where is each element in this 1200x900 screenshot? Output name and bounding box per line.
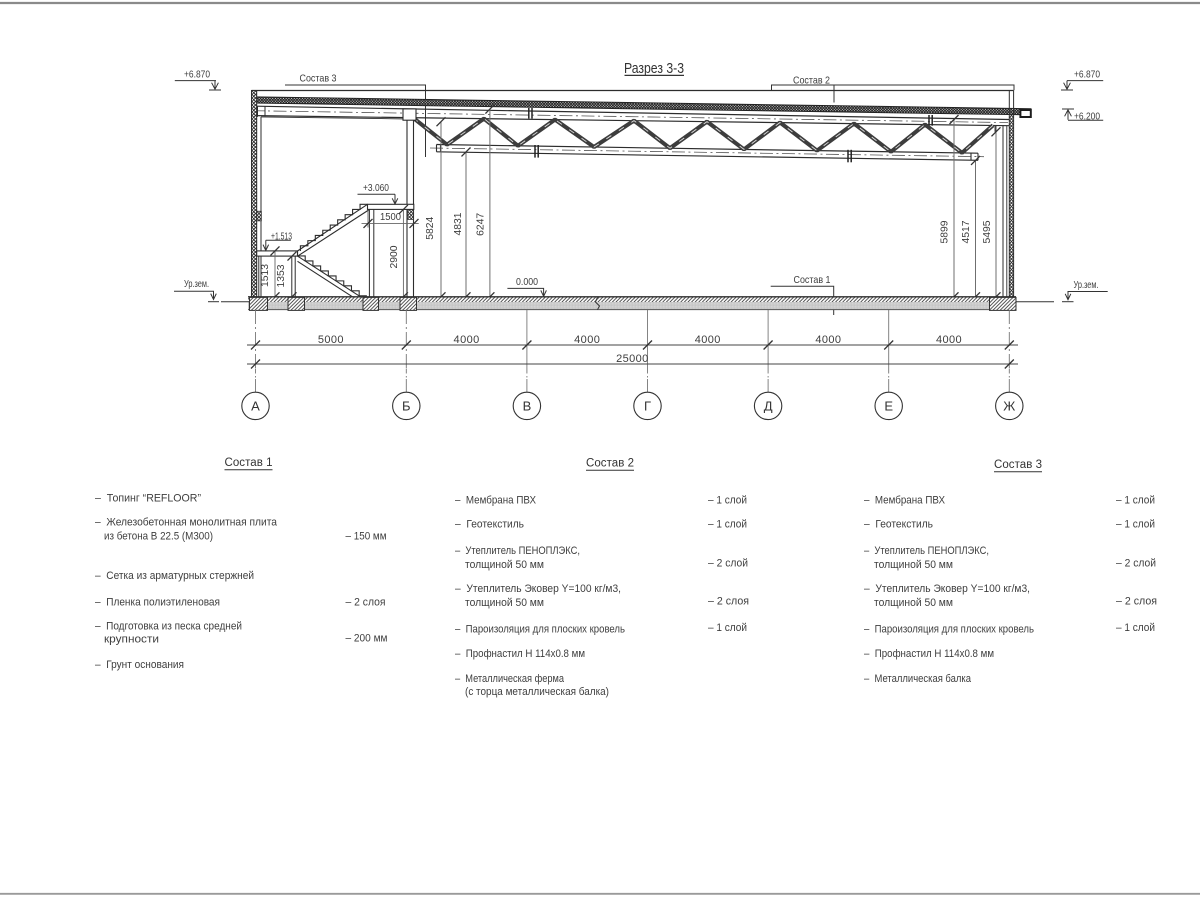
svg-text:– Мембрана ПВХ: – Мембрана ПВХ [864, 495, 945, 507]
svg-text:5899: 5899 [939, 220, 951, 243]
svg-text:– 1 слой: – 1 слой [1116, 622, 1155, 634]
svg-text:– 2 слоя: – 2 слоя [346, 597, 386, 609]
svg-text:4000: 4000 [695, 334, 721, 346]
svg-text:А: А [251, 399, 260, 414]
svg-text:Состав 3: Состав 3 [300, 73, 337, 84]
svg-text:0.000: 0.000 [516, 277, 538, 288]
svg-text:Ур.зем.: Ур.зем. [184, 279, 209, 290]
svg-text:+1.513: +1.513 [271, 232, 292, 243]
svg-text:1500: 1500 [380, 212, 401, 223]
svg-text:– Профнастил Н 114х0.8 мм: – Профнастил Н 114х0.8 мм [455, 648, 585, 660]
svg-text:+6.870: +6.870 [1074, 70, 1100, 81]
svg-text:– Металлическая ферма: – Металлическая ферма [455, 673, 564, 685]
svg-text:– 1 слой: – 1 слой [708, 495, 747, 507]
svg-text:4000: 4000 [574, 334, 600, 346]
svg-text:– 2 слоя: – 2 слоя [708, 596, 749, 608]
svg-text:– Подготовка из песка средней: – Подготовка из песка средней [95, 621, 242, 633]
svg-text:4517: 4517 [960, 220, 972, 243]
svg-text:+3.060: +3.060 [363, 183, 389, 194]
svg-text:– 2 слоя: – 2 слоя [1116, 596, 1157, 608]
svg-text:25000: 25000 [616, 353, 649, 365]
svg-text:– Мембрана ПВХ: – Мембрана ПВХ [455, 495, 536, 507]
svg-text:4000: 4000 [454, 334, 480, 346]
svg-text:– Грунт основания: – Грунт основания [95, 659, 184, 671]
svg-text:Д: Д [764, 399, 773, 414]
svg-text:+6.870: +6.870 [184, 70, 210, 81]
svg-text:4000: 4000 [936, 334, 962, 346]
svg-text:из бетона В 22.5 (М300): из бетона В 22.5 (М300) [104, 531, 213, 543]
svg-text:– 1 слой: – 1 слой [1116, 519, 1155, 531]
svg-text:– 2 слой: – 2 слой [1116, 558, 1156, 570]
svg-text:– Утеплитель Эковер Y=100 кг/: – Утеплитель Эковер Y=100 кг/м3, [864, 583, 1030, 595]
svg-text:Разрез 3-3: Разрез 3-3 [624, 60, 684, 77]
svg-text:– 200 мм: – 200 мм [346, 633, 388, 645]
svg-text:6247: 6247 [475, 213, 487, 236]
svg-text:Состав 1: Состав 1 [225, 457, 273, 469]
svg-text:– Пароизоляция для плоских кр: – Пароизоляция для плоских кровель [455, 624, 625, 636]
svg-text:Ур.зем.: Ур.зем. [1074, 280, 1099, 291]
svg-text:Е: Е [884, 399, 893, 414]
svg-text:– 1 слой: – 1 слой [1116, 495, 1155, 507]
svg-text:1353: 1353 [276, 264, 287, 287]
svg-text:– Профнастил Н 114х0.8 мм: – Профнастил Н 114х0.8 мм [864, 648, 994, 660]
svg-text:(с торца металлическая балка): (с торца металлическая балка) [465, 686, 609, 698]
svg-text:– Геотекстиль: – Геотекстиль [864, 519, 933, 531]
svg-text:4831: 4831 [452, 212, 464, 235]
svg-text:5000: 5000 [318, 334, 344, 346]
svg-text:5824: 5824 [424, 217, 436, 240]
svg-text:толщиной 50 мм: толщиной 50 мм [874, 597, 953, 609]
svg-text:– Пленка полиэтиленовая: – Пленка полиэтиленовая [95, 597, 220, 609]
svg-text:– Железобетонная монолитная: – Железобетонная монолитная плита [95, 517, 277, 529]
svg-text:+6.200: +6.200 [1074, 111, 1100, 122]
svg-text:Б: Б [402, 399, 411, 414]
svg-text:– Топинг “REFLOOR”: – Топинг “REFLOOR” [95, 493, 201, 505]
svg-text:Состав 2: Состав 2 [586, 458, 634, 470]
svg-text:В: В [523, 399, 532, 414]
svg-text:Г: Г [644, 399, 651, 414]
svg-text:толщиной 50 мм: толщиной 50 мм [465, 559, 544, 571]
svg-text:– Металлическая балка: – Металлическая балка [864, 673, 971, 685]
svg-text:– Утеплитель ПЕНОПЛЭКС,: – Утеплитель ПЕНОПЛЭКС, [864, 545, 989, 557]
svg-text:5495: 5495 [981, 220, 993, 243]
svg-text:4000: 4000 [815, 334, 841, 346]
svg-text:– Пароизоляция для плоских кр: – Пароизоляция для плоских кровель [864, 624, 1034, 636]
svg-text:Состав 1: Состав 1 [794, 275, 831, 286]
svg-text:– 150 мм: – 150 мм [346, 531, 387, 543]
svg-text:1513: 1513 [260, 264, 271, 287]
svg-text:– 1 слой: – 1 слой [708, 519, 747, 531]
svg-text:– Утеплитель Эковер Y=100 кг/: – Утеплитель Эковер Y=100 кг/м3, [455, 583, 621, 595]
svg-text:толщиной 50 мм: толщиной 50 мм [465, 597, 544, 609]
svg-text:толщиной 50 мм: толщиной 50 мм [874, 559, 953, 571]
svg-text:– Утеплитель ПЕНОПЛЭКС,: – Утеплитель ПЕНОПЛЭКС, [455, 545, 580, 557]
svg-text:Состав 3: Состав 3 [994, 459, 1042, 471]
svg-text:– Геотекстиль: – Геотекстиль [455, 519, 524, 531]
svg-text:Ж: Ж [1003, 399, 1015, 414]
svg-text:2900: 2900 [389, 245, 400, 268]
svg-text:– Сетка из арматурных стержне: – Сетка из арматурных стержней [95, 570, 254, 582]
svg-text:– 2 слой: – 2 слой [708, 558, 748, 570]
svg-text:крупности: крупности [104, 634, 159, 646]
svg-text:– 1 слой: – 1 слой [708, 622, 747, 634]
